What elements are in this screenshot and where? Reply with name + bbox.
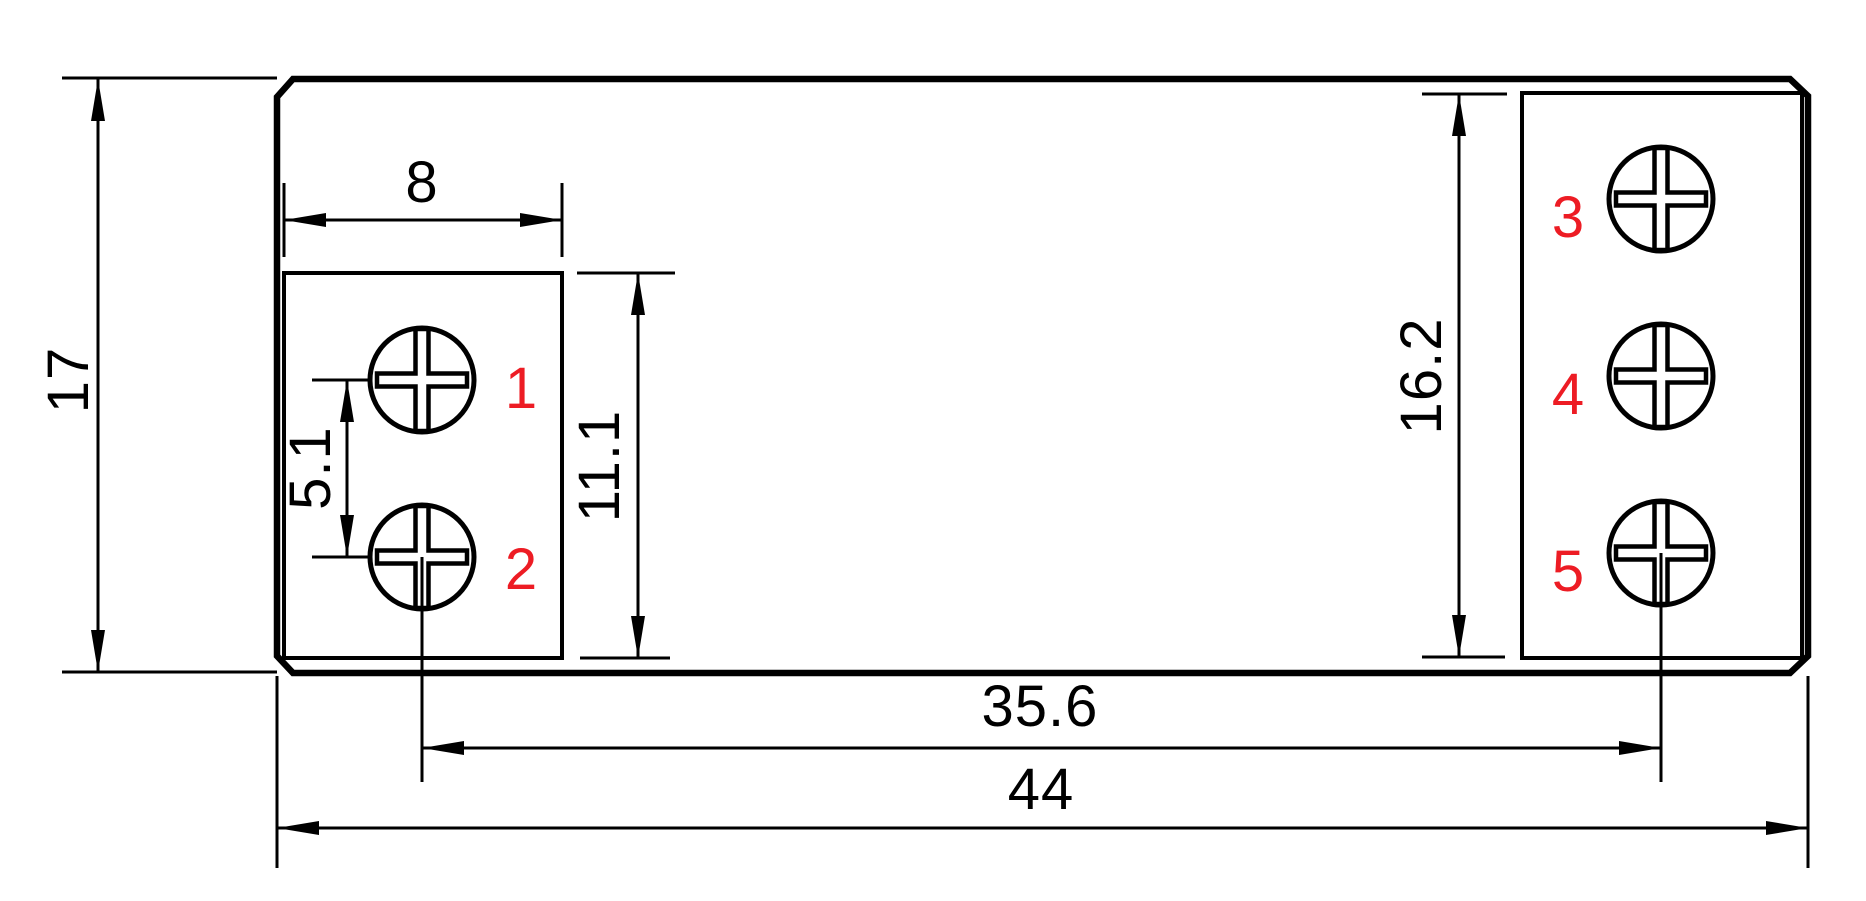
dim-screw-span: 35.6 [422,674,1661,755]
dim-overall-width-label: 44 [1008,757,1075,822]
terminal-5-label: 5 [1552,539,1584,604]
dim-pad-width: 8 [284,150,562,257]
screw-terminal-4 [1609,324,1713,428]
arrowhead [1766,821,1808,835]
dim-right-pad-height: 16.2 [1389,94,1507,657]
arrowhead [520,213,562,227]
technical-drawing: 17 8 5.1 11.1 16.2 [0,0,1866,901]
arrowhead [284,213,326,227]
arrowhead [1452,615,1466,657]
dim-overall-height-label: 17 [36,347,101,414]
dim-right-pad-height-label: 16.2 [1389,318,1454,435]
arrowhead [340,380,354,422]
arrowhead [631,616,645,658]
arrowhead [277,821,319,835]
terminal-1-label: 1 [505,356,537,421]
terminal-2-label: 2 [505,537,537,602]
arrowhead [1619,741,1661,755]
dim-screw-span-label: 35.6 [982,674,1099,739]
arrowhead [422,741,464,755]
arrowhead [1452,94,1466,136]
drawing-canvas: 17 8 5.1 11.1 16.2 [0,0,1866,901]
dim-left-pad-height: 11.1 [567,273,675,658]
arrowhead [91,79,105,121]
dim-screw-pitch-label: 5.1 [278,426,343,510]
dim-pad-width-label: 8 [405,150,438,215]
arrowhead [91,630,105,672]
arrowhead [340,515,354,557]
screw-terminal-3 [1609,147,1713,251]
dim-overall-height: 17 [36,78,277,672]
terminal-4-label: 4 [1552,362,1584,427]
dim-left-pad-height-label: 11.1 [567,410,632,523]
screw-terminal-1 [370,328,474,432]
arrowhead [631,273,645,315]
terminal-3-label: 3 [1552,185,1584,250]
